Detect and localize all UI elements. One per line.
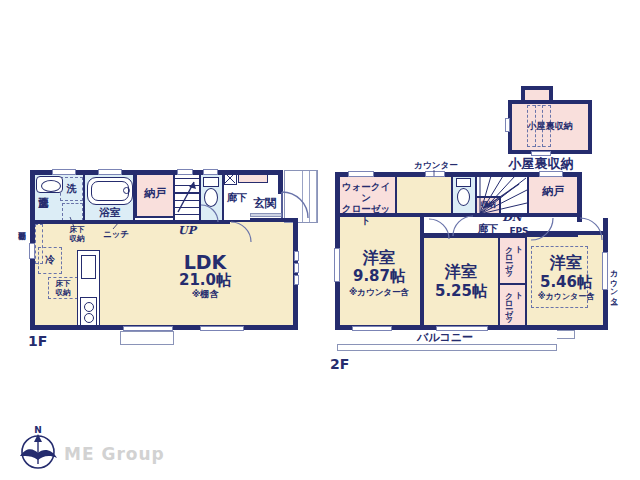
- terrace-step: [120, 331, 174, 345]
- entrance-label: 玄関: [250, 197, 280, 211]
- wall: [30, 220, 230, 224]
- window: [425, 171, 445, 177]
- balcony-label: バルコニー: [400, 332, 490, 345]
- window: [177, 169, 193, 175]
- window: [29, 243, 35, 259]
- closet-b-label: クローゼット: [503, 286, 523, 324]
- wall: [527, 231, 608, 235]
- wall: [293, 218, 298, 330]
- bedroom-a-note: ※カウンター含: [340, 287, 418, 297]
- underfloor-storage-box: [62, 203, 83, 221]
- balcony-railing: [337, 344, 557, 351]
- floor-1-label: 1F: [28, 333, 58, 350]
- wall: [278, 170, 283, 194]
- entrance-step-sill: [250, 213, 282, 217]
- brand-logo-text: ME Group: [64, 444, 165, 464]
- window: [294, 251, 299, 261]
- ldk-note: ※棚含: [155, 289, 255, 300]
- attic-caption: 小屋裏収納: [500, 156, 582, 171]
- toilet-icon: [457, 188, 470, 206]
- storage-small-label: 収納: [476, 201, 500, 210]
- window: [348, 171, 374, 177]
- window: [294, 275, 299, 285]
- bedroom-b-size: 5.25帖: [424, 283, 498, 301]
- compass-north-label: N: [33, 425, 43, 436]
- compass-icon: [20, 434, 57, 468]
- attic-room-label: 小屋裏収納: [510, 121, 590, 132]
- window: [200, 326, 244, 331]
- bedroom-a-name: 洋室: [340, 249, 418, 268]
- bedroom-c-size: 5.46帖: [527, 274, 605, 292]
- counter-nook: [395, 172, 453, 216]
- stairs-1f: [173, 170, 201, 224]
- bathroom-label: 浴室: [90, 206, 130, 218]
- toilet-icon: [456, 178, 471, 187]
- washroom-label: 洗面室: [38, 189, 48, 225]
- bedroom-b-name: 洋室: [424, 263, 498, 282]
- window: [294, 263, 299, 273]
- underfloor-storage-label: 床下 収納: [48, 280, 78, 298]
- washer-label: 洗: [60, 183, 83, 195]
- hallway-1f-label: 廊下: [224, 192, 250, 204]
- entrance-porch: [284, 170, 318, 223]
- eps-label: EPS: [505, 226, 533, 237]
- toilet-icon: [204, 188, 218, 207]
- bedroom-c-note: ※カウンター含: [527, 292, 605, 301]
- porch-step-line: [302, 171, 303, 222]
- closet-a-label: クローゼット: [503, 240, 523, 282]
- kitchen-counter-icon: [77, 250, 100, 328]
- underfloor-storage-label: 床下 収納: [62, 226, 92, 244]
- stairs-down-label: DN: [498, 212, 526, 225]
- floor-2-label: 2F: [330, 356, 362, 373]
- hallway-2f-label: 廊下: [474, 223, 502, 235]
- bedroom-c-name: 洋室: [527, 254, 605, 273]
- bathtub-icon: [87, 177, 133, 205]
- stairs-up-label: UP: [173, 225, 201, 238]
- wall: [250, 218, 298, 222]
- floorplan-canvas: 小屋裏収納 小屋裏収納: [0, 0, 640, 480]
- window: [352, 326, 392, 331]
- fridge-label: 冷: [38, 254, 62, 266]
- niche-label: ニッチ: [100, 229, 132, 239]
- storage-nando-2f-label: 納戸: [533, 186, 573, 199]
- wall: [577, 172, 582, 222]
- toilet-icon: [203, 177, 219, 187]
- counter-side-label: カウンター: [609, 264, 617, 310]
- window: [123, 326, 173, 331]
- movable-shelf-label: 可動棚: [18, 226, 26, 260]
- walkin-closet-label: ウォークイン クローゼット: [337, 181, 395, 226]
- ldk-size: 21.0帖: [155, 272, 255, 290]
- window: [52, 169, 76, 175]
- porch-step-line: [316, 171, 317, 222]
- window: [539, 171, 563, 177]
- window: [203, 169, 218, 175]
- window: [98, 169, 122, 175]
- storage-nando-1f-label: 納戸: [138, 188, 172, 201]
- porch-step-line: [309, 171, 310, 222]
- bedroom-a-size: 9.87帖: [340, 268, 418, 286]
- counter-top-label: カウンター: [404, 160, 468, 170]
